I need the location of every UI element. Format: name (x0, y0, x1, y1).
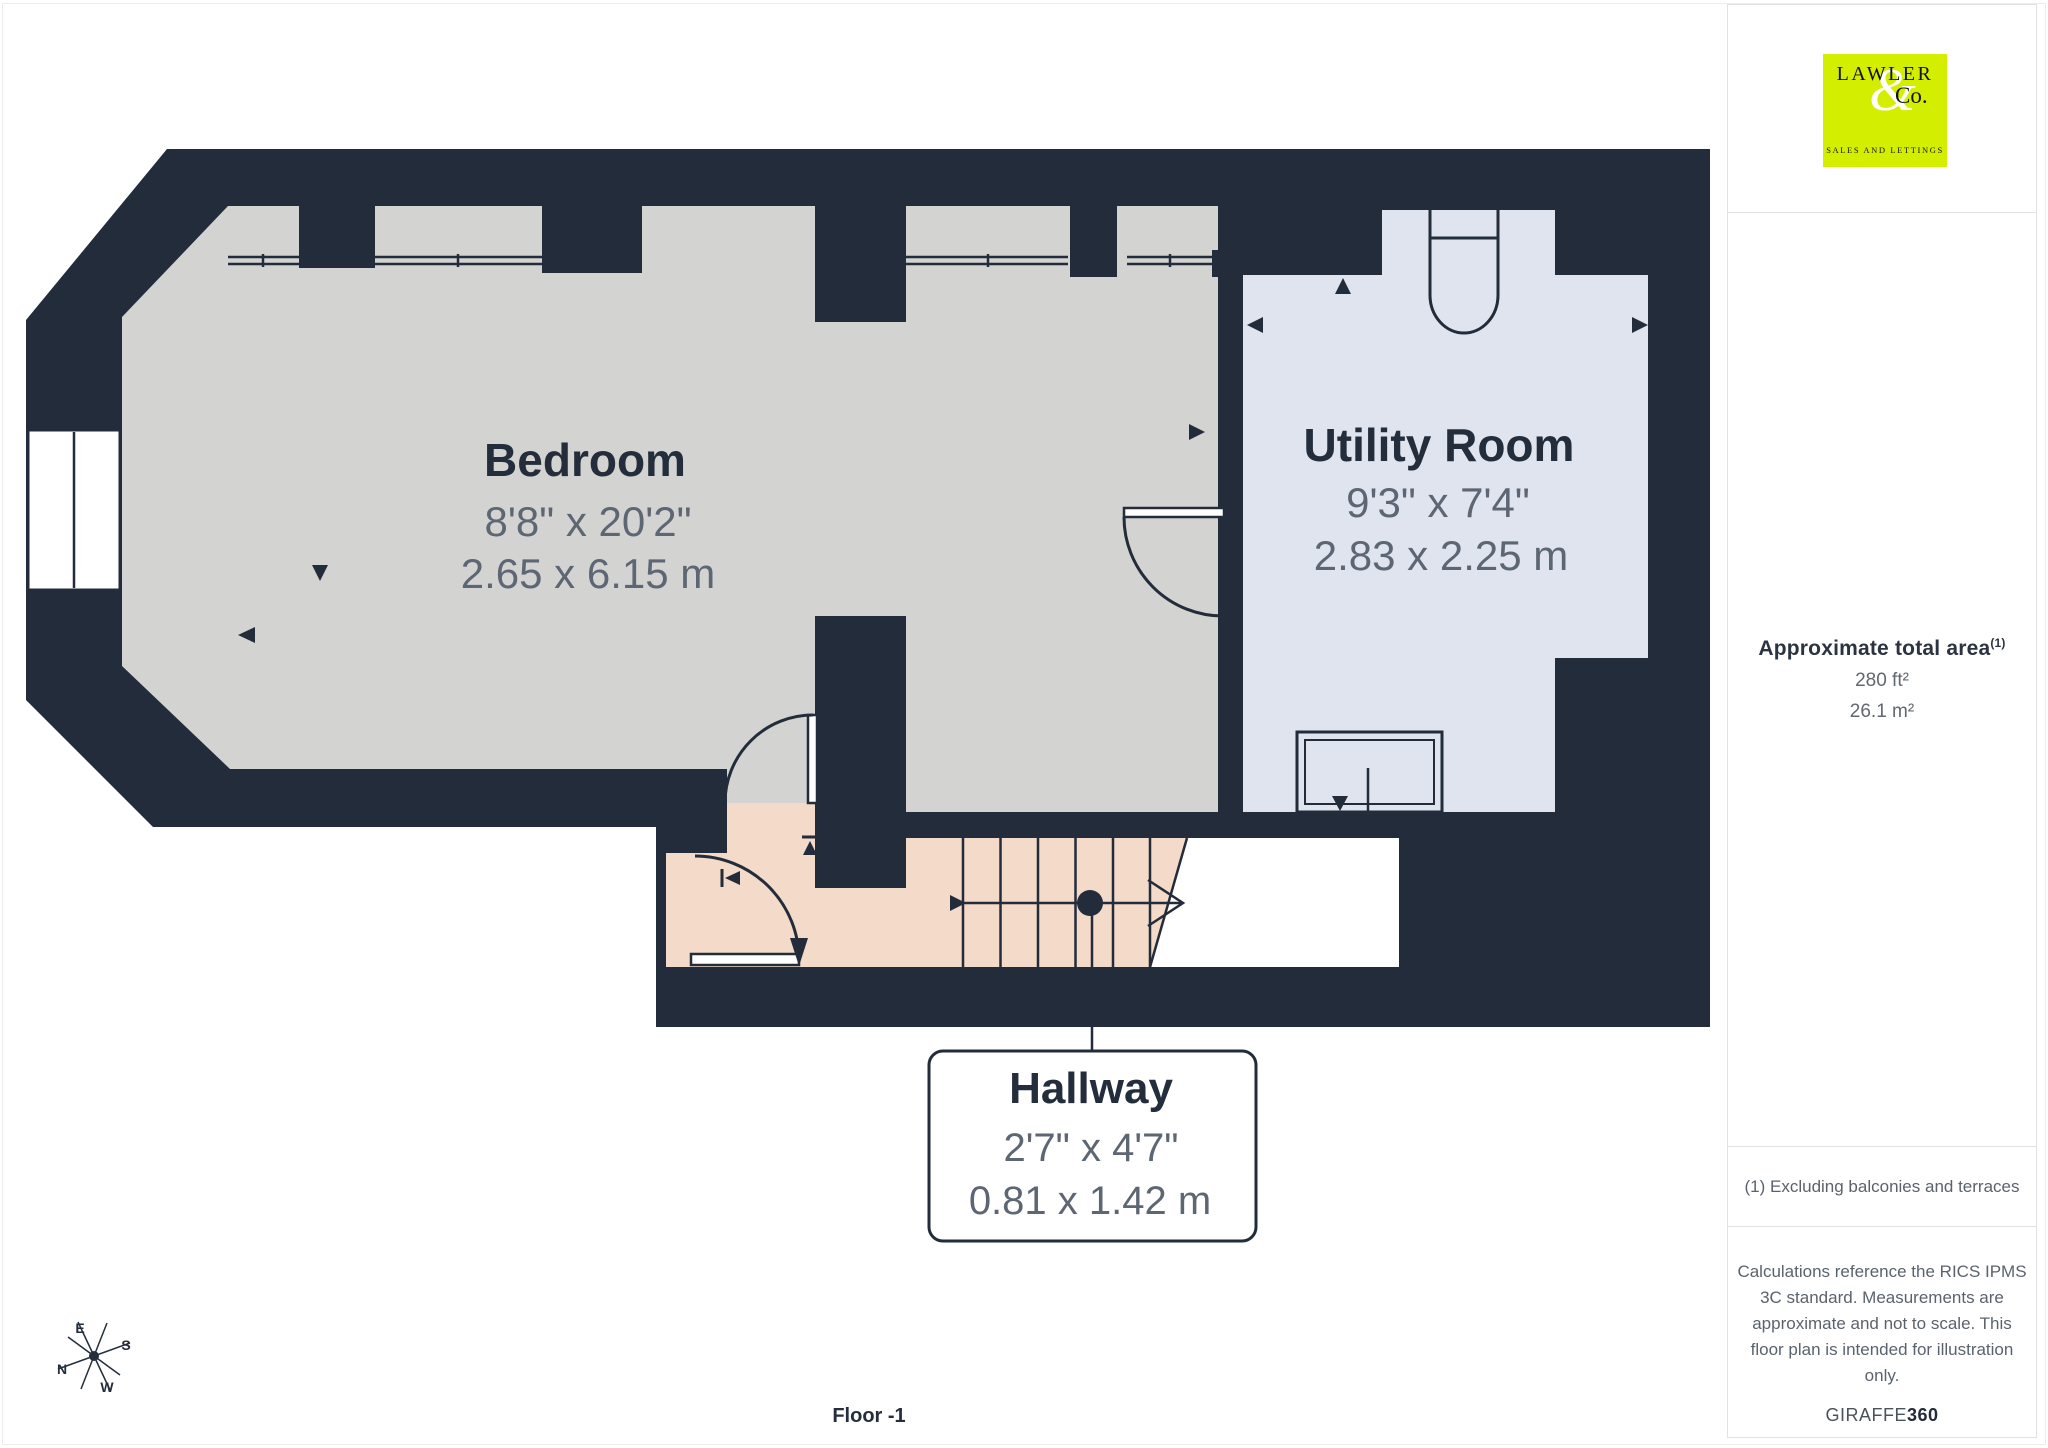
compass-e: E (75, 1320, 84, 1336)
utility-label: Utility Room (1304, 419, 1575, 471)
sidebar-disclaimer-panel: Calculations reference the RICS IPMS 3C … (1727, 1226, 2037, 1438)
disclaimer-line: approximate and not to scale. This (1728, 1311, 2036, 1337)
hallway-dim-imperial: 2'7" x 4'7" (1004, 1126, 1179, 1170)
disclaimer-line: Calculations reference the RICS IPMS (1728, 1259, 2036, 1285)
bedroom-dim-imperial: 8'8" x 20'2" (485, 498, 692, 545)
total-area-imperial: 280 ft² (1855, 670, 1909, 692)
logo-tagline: SALES AND LETTINGS (1823, 145, 1947, 155)
sidebar-logo-panel: & LAWLER Co. SALES AND LETTINGS (1727, 4, 2037, 213)
hallway-dim-metric: 0.81 x 1.42 m (969, 1179, 1211, 1223)
sidebar-area-panel: Approximate total area(1) 280 ft² 26.1 m… (1727, 212, 2037, 1147)
hallway-step-wall (656, 827, 727, 853)
chimney-pier (815, 206, 906, 322)
disclaimer-line: floor plan is intended for illustration (1728, 1337, 2036, 1363)
floor-label: Floor -1 (832, 1405, 905, 1427)
compass-n: N (57, 1361, 67, 1377)
utility-left-wall-lower (1218, 614, 1243, 812)
compass-w: W (100, 1379, 114, 1395)
logo-name: LAWLER (1823, 63, 1947, 86)
footnote-text: (1) Excluding balconies and terraces (1745, 1177, 2020, 1197)
compass-icon: E S N W (57, 1320, 131, 1395)
hallway-stair-wall-block (815, 616, 906, 888)
hallway-label: Hallway (1009, 1064, 1173, 1113)
disclaimer-line: 3C standard. Measurements are (1728, 1285, 2036, 1311)
giraffe360-brand: GIRAFFE360 (1728, 1405, 2036, 1426)
floorplan-page: Bedroom 8'8" x 20'2" 2.65 x 6.15 m Utili… (0, 0, 2048, 1448)
utility-dim-imperial: 9'3" x 7'4" (1346, 479, 1530, 526)
stair-void (1150, 838, 1399, 967)
logo-co: Co. (1895, 83, 1928, 109)
sidebar-footnote-panel: (1) Excluding balconies and terraces (1727, 1146, 2037, 1227)
compass-s: S (121, 1337, 130, 1353)
total-area-metric: 26.1 m² (1850, 701, 1914, 723)
stairs-start-dot (1077, 890, 1103, 916)
disclaimer-line: only. (1728, 1363, 2036, 1389)
utility-left-wall-upper (1218, 277, 1243, 512)
bedroom-dim-metric: 2.65 x 6.15 m (461, 550, 715, 597)
agency-logo: & LAWLER Co. SALES AND LETTINGS (1823, 54, 1947, 167)
footnote-marker: (1) (1990, 636, 2005, 650)
utility-dim-metric: 2.83 x 2.25 m (1314, 532, 1568, 579)
bedroom-label: Bedroom (484, 434, 686, 486)
total-area-title: Approximate total area(1) (1758, 636, 2005, 661)
bay-window (28, 430, 120, 590)
